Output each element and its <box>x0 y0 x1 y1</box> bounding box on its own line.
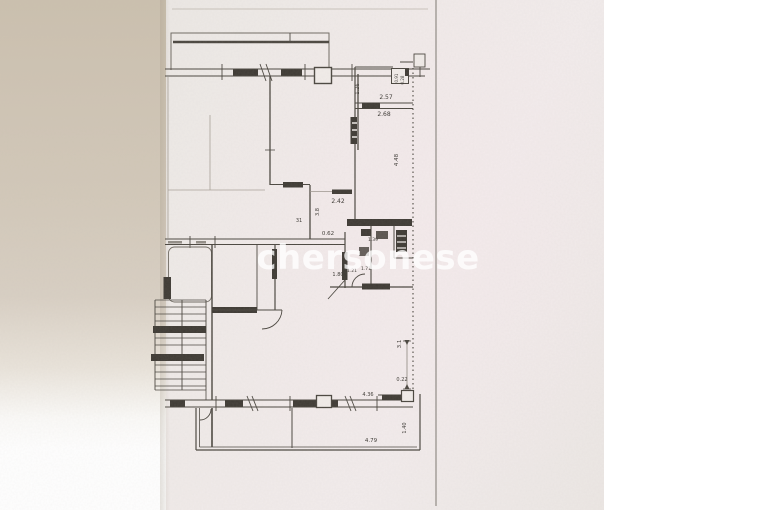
floor-plan-drawing: 1.26 0.91 0.28 2.57 2.68 4.48 2.42 3.8 3… <box>0 0 770 510</box>
watermark-text: chersonese <box>256 238 479 278</box>
scanned-floorplan-photo: 1.26 0.91 0.28 2.57 2.68 4.48 2.42 3.8 3… <box>0 0 770 510</box>
